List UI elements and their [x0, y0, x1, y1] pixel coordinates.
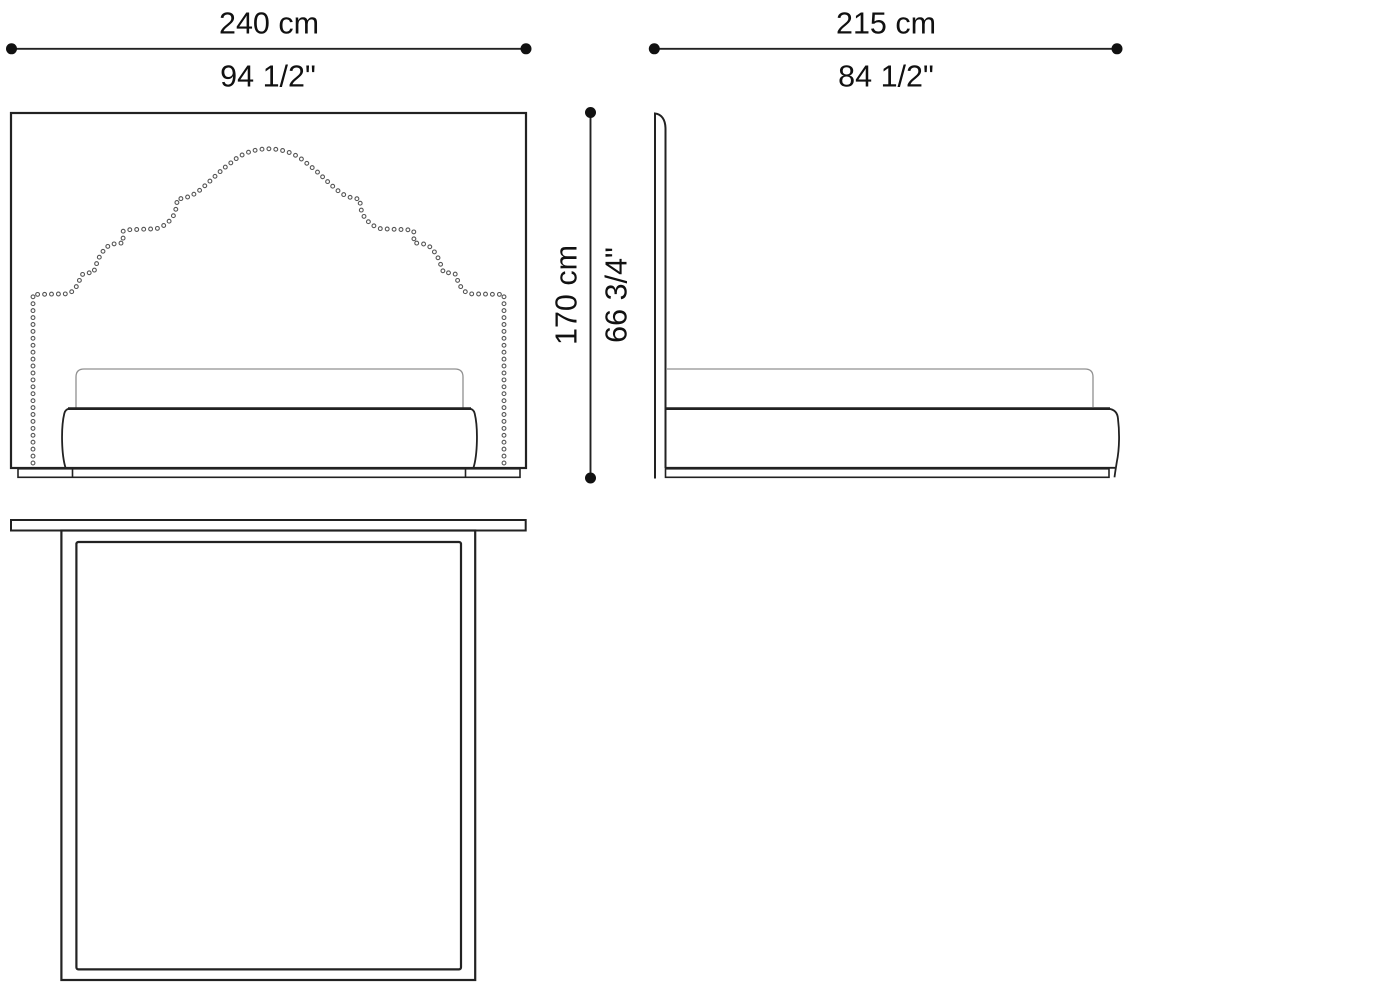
svg-text:84 1/2": 84 1/2": [838, 60, 934, 94]
svg-text:66 3/4": 66 3/4": [600, 247, 634, 343]
svg-text:94 1/2": 94 1/2": [220, 60, 316, 94]
svg-text:240 cm: 240 cm: [219, 7, 319, 41]
svg-text:170 cm: 170 cm: [550, 245, 584, 345]
svg-text:215 cm: 215 cm: [836, 7, 936, 41]
